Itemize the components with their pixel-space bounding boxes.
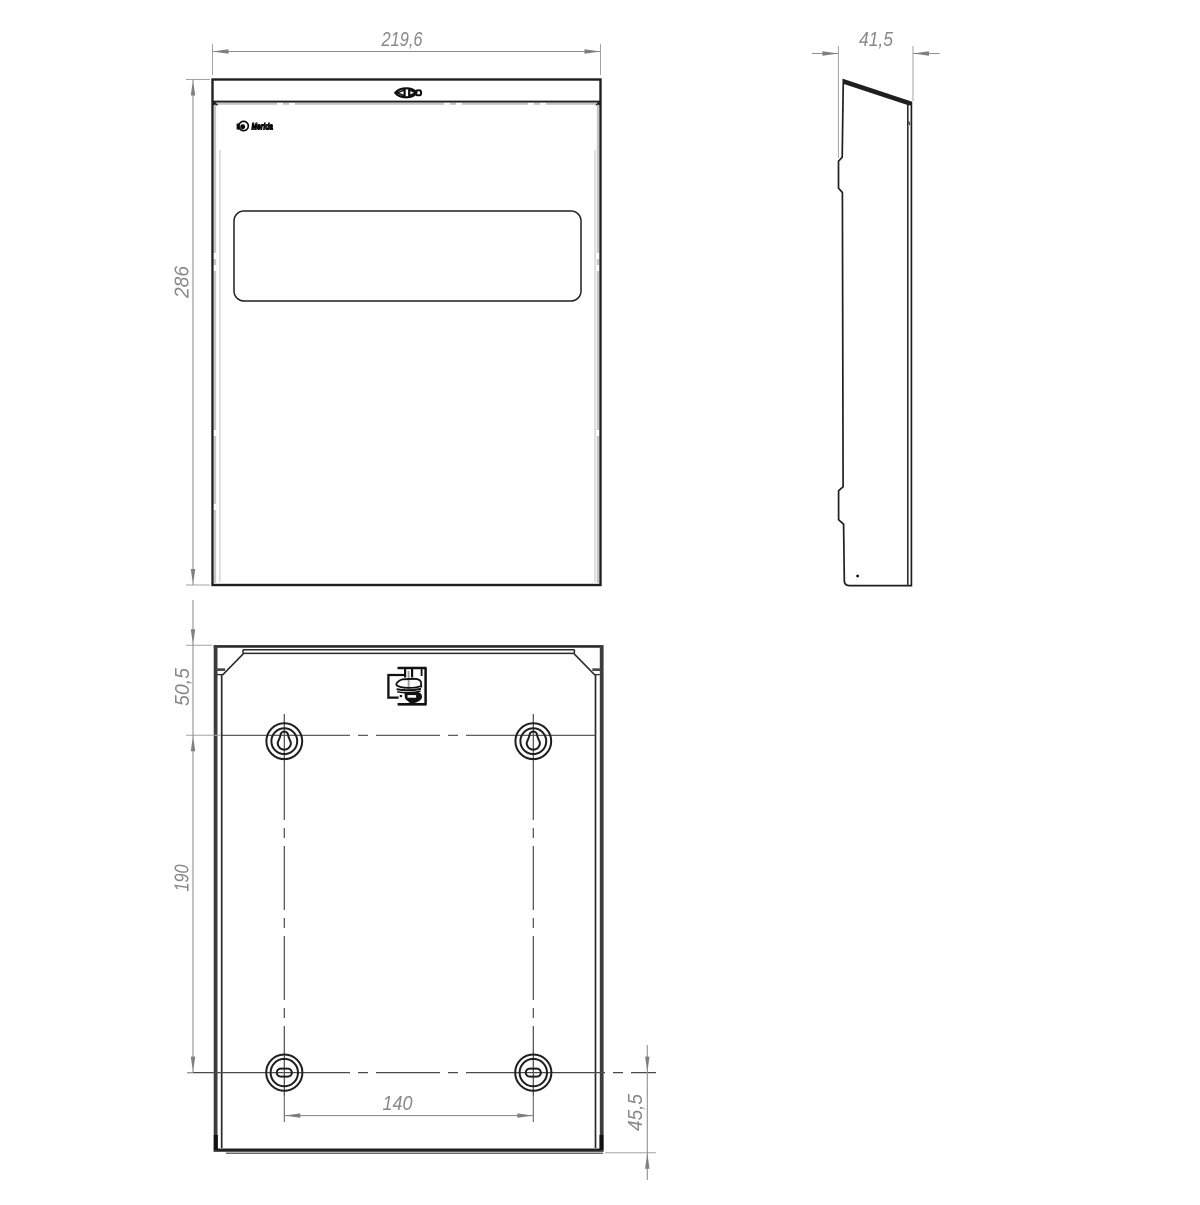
svg-text:140: 140 — [383, 1092, 414, 1115]
svg-text:219,6: 219,6 — [381, 28, 423, 51]
svg-text:41,5: 41,5 — [859, 28, 894, 51]
svg-text:286: 286 — [171, 265, 194, 298]
svg-text:50,5: 50,5 — [171, 667, 194, 706]
svg-text:190: 190 — [170, 864, 193, 891]
svg-text:Merida: Merida — [252, 122, 274, 132]
svg-text:45,5: 45,5 — [624, 1093, 647, 1131]
